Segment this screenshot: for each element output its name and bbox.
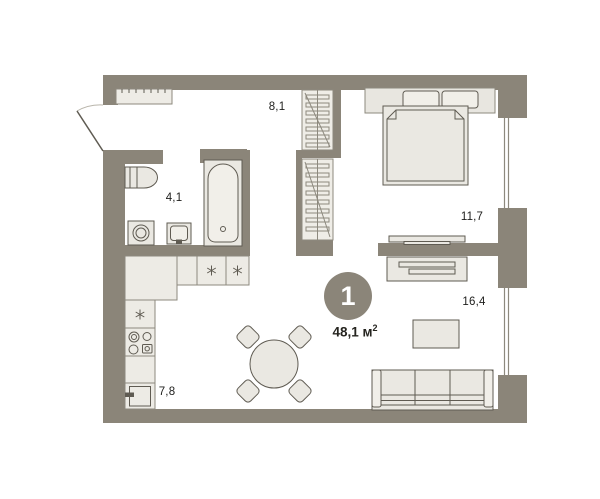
dining-table [250, 340, 298, 388]
dining-table-set [235, 324, 312, 403]
room-label-bedroom: 11,7 [461, 211, 483, 223]
pillow [403, 91, 439, 108]
sofa [372, 370, 493, 410]
room-label-living-room: 16,4 [462, 296, 485, 308]
room-label-hallway: 8,1 [269, 101, 286, 113]
unit-number: 1 [340, 281, 355, 312]
total-area-label: 48,1 м2 [332, 323, 377, 340]
wardrobe-top [302, 90, 333, 150]
room-label-kitchen: 7,8 [159, 386, 176, 398]
floorplan-canvas: 8,1 4,1 11,7 16,4 7,8 1 48,1 м2 [0, 0, 600, 499]
dining-chair [235, 378, 260, 403]
entrance-door [77, 105, 103, 151]
bathroom-sink [167, 223, 191, 244]
shoe-rack [116, 89, 172, 104]
floorplan-drawing [0, 0, 600, 499]
unit-badge: 1 [324, 272, 372, 320]
coffee-table [413, 320, 459, 348]
bathtub [204, 160, 242, 246]
bed-group [365, 88, 495, 185]
total-area-value: 48,1 м [332, 324, 372, 339]
wardrobe-bottom [302, 159, 333, 240]
door-swing-arc [77, 105, 103, 111]
dining-chair [235, 324, 260, 349]
tv-stand [387, 257, 467, 281]
toilet [125, 167, 158, 188]
dining-chair [287, 378, 312, 403]
dining-chair [287, 324, 312, 349]
pillow [442, 91, 478, 108]
door-leaf [77, 111, 103, 151]
window-living-room [505, 288, 509, 375]
total-area-sup: 2 [373, 323, 378, 333]
window-bedroom [505, 118, 509, 208]
washing-machine [128, 221, 154, 245]
room-label-bathroom: 4,1 [166, 192, 183, 204]
